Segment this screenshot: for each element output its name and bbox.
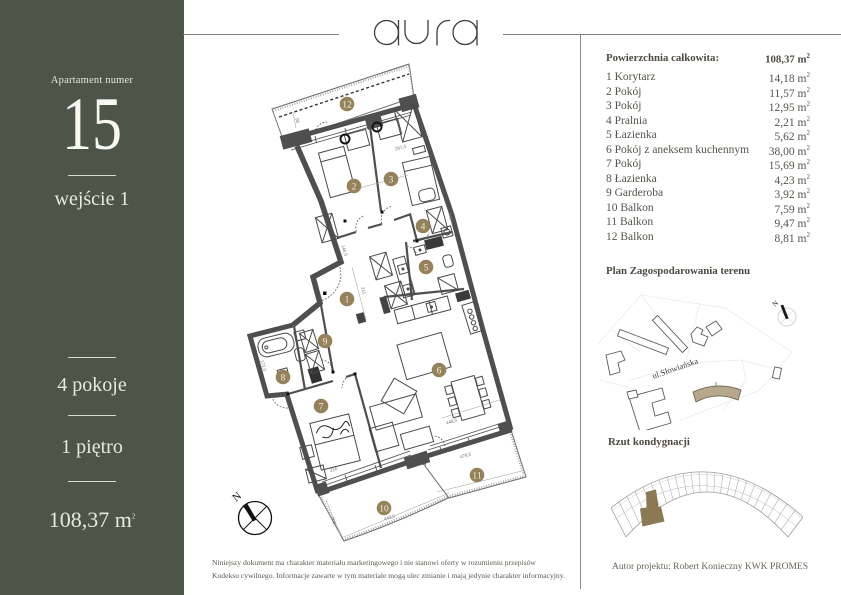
svg-text:5: 5 <box>424 264 429 274</box>
svg-text:12: 12 <box>342 101 352 111</box>
svg-text:4: 4 <box>421 223 426 233</box>
svg-text:2: 2 <box>352 183 357 193</box>
svg-text:1: 1 <box>345 296 350 306</box>
svg-text:11: 11 <box>472 472 481 482</box>
svg-text:211: 211 <box>360 286 367 295</box>
svg-text:448,5: 448,5 <box>445 417 458 425</box>
svg-text:ul.Słowiańska: ul.Słowiańska <box>651 356 700 381</box>
svg-text:N: N <box>771 299 780 308</box>
svg-text:N: N <box>230 490 244 504</box>
svg-text:281,5: 281,5 <box>394 144 407 152</box>
svg-text:8: 8 <box>281 374 286 384</box>
svg-text:216: 216 <box>329 466 338 473</box>
svg-text:10: 10 <box>379 505 389 515</box>
svg-text:7: 7 <box>319 403 324 413</box>
svg-text:3: 3 <box>389 176 394 186</box>
svg-text:9: 9 <box>323 338 328 348</box>
svg-text:6: 6 <box>437 367 442 377</box>
